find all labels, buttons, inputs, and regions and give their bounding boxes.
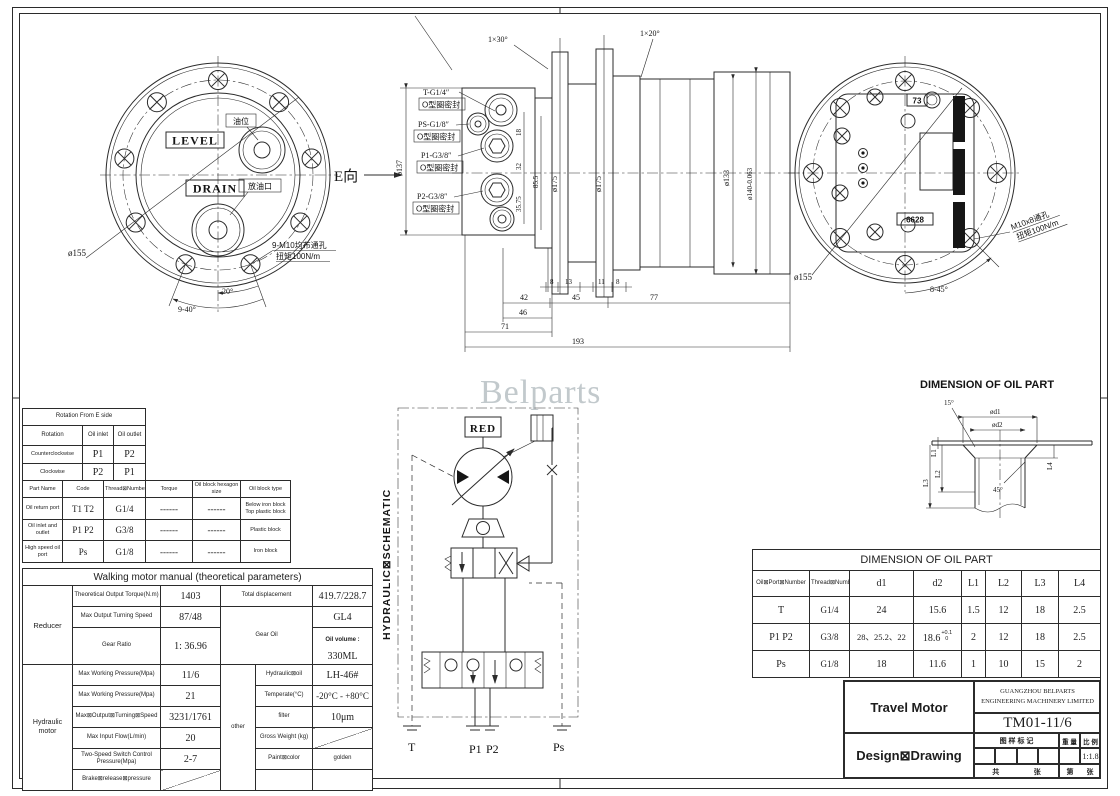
dim-dia-137: ø137 [395,160,404,176]
drawing-number-cell: TM01-11/6 [974,713,1101,733]
rotation-table-title: Rotation From E side [23,409,146,426]
part-name-cell: Travel Motor [844,681,974,733]
row-label: Max Working Pressure(Mpa) [73,665,161,686]
rotation-row-cw: Clockwise [23,464,83,481]
part-row-code: P1 P2 [63,520,104,541]
cell: T [753,597,810,624]
motor-table-title: Walking motor manual (theoretical parame… [23,569,373,586]
port-label-ps: PS-G1/8″ [418,120,449,129]
row-value: 20 [161,728,221,749]
part-row-type: Below iron blockTop plastic block [241,498,291,520]
scale-label-cell: 比 例 [1080,733,1101,748]
page-label: 第 [1067,767,1074,777]
cell: 15 [1022,651,1059,678]
hydraulic-motor-group-label: Hydraulic motor [23,665,73,791]
dim-18: 18 [515,129,523,137]
walking-motor-table: Walking motor manual (theoretical parame… [22,568,373,791]
cell: 2.5 [1059,624,1101,651]
schematic-port-p1: P1 [469,742,482,756]
ccw-outlet: P2 [114,446,146,464]
dim-32: 32 [515,163,523,171]
empty-diagonal-cell [313,728,373,749]
part-row-hex: ------ [193,541,241,563]
table-row: Oil return port T1 T2 G1/4 ------ ------… [23,498,291,520]
row-value: 2-7 [161,749,221,770]
gear-oil-label: Gear Oil [221,607,313,665]
port-label-p2: P2-G3/8″ [417,192,447,201]
oil-port-detail: DIMENSION OF OIL PART 45° ød1 ød2 15° [920,379,1092,518]
reducer-group-label: Reducer [23,586,73,665]
row-label: Gross Weight (kg) [256,728,313,749]
dim-85-5: 85.5 [532,175,540,188]
row-label: Max Output Turning Speed [73,607,161,628]
sheet-total-cell: 共 张 [974,764,1059,779]
port-seal-p2: O型圈密封 [416,204,454,214]
row-value: 10μm [313,707,373,728]
dim-8b: 8 [616,278,620,286]
part-row-name: High speed oil port [23,541,63,563]
oil-port-number-header: Oil⊠Port⊠Number [753,571,810,597]
cell: Ps [753,651,810,678]
stage-cell: Design⊠Drawing [844,733,974,779]
part-row-code: Ps [63,541,104,563]
part-row-thread: G1/8 [104,541,146,563]
row-value: 11/6 [161,665,221,686]
dim-42: 42 [520,293,528,302]
table-row: P1 P2 G3/8 28、25.2、22 18.6+0.10 2 12 18 … [753,624,1101,651]
rear-plug-label-bottom: 6628 [906,216,924,225]
part-row-torque: ------ [146,520,193,541]
d2-tolerance-cell: 18.6+0.10 [914,624,962,651]
table-row: Ps G1/8 18 11.6 1 10 15 2 [753,651,1101,678]
dim-45: 45 [572,293,580,302]
cell: P1 P2 [753,624,810,651]
row-value: 419.7/228.7 [313,586,373,607]
rear-dia-155: ø155 [794,272,813,282]
empty-diagonal-cell [161,770,221,791]
port-seal-ps: O型圈密封 [417,132,455,142]
sheet-label: 张 [1034,767,1041,777]
row-value: 87/48 [161,607,221,628]
cell: 18 [850,651,914,678]
detail-angle-15: 15° [944,399,954,407]
part-row-thread: G1/4 [104,498,146,520]
cell: 28、25.2、22 [850,624,914,651]
front-view: LEVEL DRAIN 油位 放油口 ø155 E向 9-M10均布通孔 扭矩1… [68,56,402,314]
row-value: golden [313,749,373,770]
dim-dia-140: ø140-0.063 [746,167,754,200]
port-label-t: T-G1/4″ [423,88,449,97]
detail-dim-l3: L3 [922,479,930,487]
mark-label-cell: 图 样 标 记 [974,733,1059,748]
l4-header: L4 [1059,571,1101,597]
company-cell: GUANGZHOU BELPARTS ENGINEERING MACHINERY… [974,681,1101,713]
rear-plug-label-top: 73 [913,97,922,106]
cell: 15.6 [914,597,962,624]
schematic-port-t: T [408,740,416,754]
row-value: 1403 [161,586,221,607]
part-row-torque: ------ [146,541,193,563]
cell: 2 [962,624,986,651]
d1-header: d1 [850,571,914,597]
cell: 12 [986,624,1022,651]
ccw-inlet: P1 [83,446,114,464]
front-angle-9x40: 9-40° [178,305,196,314]
port-label-p1: P1-G3/8″ [421,151,451,160]
section-view: T-G1/4″ O型圈密封 PS-G1/8″ O型圈密封 P1-G3/8″ O型… [395,16,800,352]
table-row: T G1/4 24 15.6 1.5 12 18 2.5 [753,597,1101,624]
cell: 24 [850,597,914,624]
part-row-code: T1 T2 [63,498,104,520]
dim-77: 77 [650,293,658,302]
oil-detail-title: DIMENSION OF OIL PART [920,379,1054,391]
mark-empty-cell [1038,748,1059,764]
page-sheet-label: 张 [1087,767,1094,777]
cell: 2 [1059,651,1101,678]
part-row-hex: ------ [193,520,241,541]
chamfer-1x30: 1×30° [488,35,508,44]
dim-11: 11 [598,278,605,286]
mark-empty-cell [974,748,995,764]
cw-inlet: P2 [83,464,114,481]
hexagon-header: Oil block hexagon size [193,481,241,498]
dim-13: 13 [565,278,573,286]
thread-number-header: Thread⊠Number [810,571,850,597]
front-dia-155: ø155 [68,248,87,258]
cell: 18 [1022,624,1059,651]
table-row: Oil inlet and outlet P1 P2 G3/8 ------ -… [23,520,291,541]
reducer-box-label: RED [470,423,496,435]
oil-level-note: 油位 [233,116,249,126]
drawing-sheet: Belparts [0,0,1120,796]
row-value: 1: 36.96 [161,628,221,665]
port-seal-t: O型圈密封 [422,100,460,110]
dim-46: 46 [519,308,527,317]
row-value: 21 [161,686,221,707]
row-label: Total displacement [221,586,313,607]
row-label: Brake⊠release⊠pressure [73,770,161,791]
row-label: Hydraulic⊠oil [256,665,313,686]
detail-dim-d2: ød2 [992,421,1003,429]
row-label: Max Input Flow(L/min) [73,728,161,749]
dim-35-75: 35.75 [515,196,523,212]
mark-empty-cell [995,748,1016,764]
row-label: Max Working Pressure(Mpa) [73,686,161,707]
port-seal-p1: O型圈密封 [420,163,458,173]
detail-dim-d1: ød1 [990,408,1001,416]
cell: G1/8 [810,651,850,678]
rear-bolt-note: M10x8通孔 扭矩100N/m [1009,204,1067,243]
chamfer-1x20: 1×20° [640,29,660,38]
thread-header: Thread⊠Number [104,481,146,498]
empty-cell [313,770,373,791]
dim-193: 193 [572,337,584,346]
rear-angle-8x45: 8-45° [930,285,948,294]
cell: 10 [986,651,1022,678]
dim-dia-133: ø133 [722,170,731,186]
torque-header: Torque [146,481,193,498]
part-row-torque: ------ [146,498,193,520]
cell: 18 [1022,597,1059,624]
detail-dim-l1: L1 [930,449,938,457]
d2-header: d2 [914,571,962,597]
view-direction-e: E向 [334,168,358,185]
row-label: Gear Ratio [73,628,161,665]
table-row: High speed oil port Ps G1/8 ------ -----… [23,541,291,563]
front-bolt-note-2: 扭矩100N/m [276,251,320,261]
l1-header: L1 [962,571,986,597]
hydraulic-schematic: HYDRAULIC⊠SCHEMATIC RED [381,408,578,756]
detail-dim-l2: L2 [934,470,942,478]
port-part-table: Part Name Code Thread⊠Number Torque Oil … [22,480,291,563]
l2-header: L2 [986,571,1022,597]
oil-part-table-title: DIMENSION OF OIL PART [753,550,1101,571]
oil-outlet-header: Oil outlet [114,426,146,446]
dim-dia-175-b: ø175 [594,176,603,192]
part-row-type: Plastic block [241,520,291,541]
row-value: 3231/1761 [161,707,221,728]
schematic-title: HYDRAULIC⊠SCHEMATIC [381,489,393,640]
other-group-label: other [221,665,256,791]
block-type-header: Oil block type [241,481,291,498]
dim-71: 71 [501,322,509,331]
part-row-thread: G3/8 [104,520,146,541]
cell: G3/8 [810,624,850,651]
company-line-1: GUANGZHOU BELPARTS [1000,687,1075,697]
row-value: LH-46# [313,665,373,686]
code-header: Code [63,481,104,498]
row-label: Temperate(°C) [256,686,313,707]
page-cell: 第 张 [1059,764,1101,779]
level-label: LEVEL [172,134,218,148]
drain-label: DRAIN [193,182,237,196]
cell: 1 [962,651,986,678]
cell: G1/4 [810,597,850,624]
weight-value-cell [1059,748,1080,764]
dim-8a: 8 [550,278,554,286]
dim-dia-175-a: ø175 [550,176,559,192]
cell: 1.5 [962,597,986,624]
part-row-hex: ------ [193,498,241,520]
row-value: -20°C - +80°C [313,686,373,707]
rotation-table: Rotation From E side Rotation Oil inlet … [22,408,146,481]
schematic-port-ps: Ps [553,740,565,754]
l3-header: L3 [1022,571,1059,597]
oil-part-dimension-table: DIMENSION OF OIL PART Oil⊠Port⊠Number Th… [752,549,1101,678]
row-value: GL4 [313,607,373,628]
cw-outlet: P1 [114,464,146,481]
empty-cell [256,770,313,791]
part-row-type: Iron block [241,541,291,563]
company-line-2: ENGINEERING MACHINERY LIMITED [981,697,1094,707]
part-name-header: Part Name [23,481,63,498]
oil-inlet-header: Oil inlet [83,426,114,446]
title-block: Travel Motor Design⊠Drawing GUANGZHOU BE… [843,680,1100,778]
rear-view: 73 6628 ø155 M10x8通孔 扭矩100N/m 8-45° [788,56,1067,294]
weight-label-cell: 重 量 [1059,733,1080,748]
front-angle-20: 20° [222,287,233,296]
row-label: Theoretical Output Torque(N.m) [73,586,161,607]
mark-empty-cell [1017,748,1038,764]
cell: 2.5 [1059,597,1101,624]
rotation-row-ccw: Counterclockwise [23,446,83,464]
oil-volume-cell: Oil volume : 330ML [313,628,373,665]
row-label: Max⊠Output⊠Turning⊠Speed [73,707,161,728]
row-label: filter [256,707,313,728]
detail-angle-45: 45° [993,486,1003,494]
row-label: Two-Speed Switch Control Pressure(Mpa) [73,749,161,770]
row-label: Paint⊠color [256,749,313,770]
front-bolt-note-1: 9-M10均布通孔 [272,240,327,250]
drain-port-note: 放油口 [248,181,272,191]
total-label: 共 [992,767,999,777]
part-row-name: Oil return port [23,498,63,520]
scale-value-cell: 1:1.8 [1080,748,1101,764]
part-row-name: Oil inlet and outlet [23,520,63,541]
cell: 12 [986,597,1022,624]
detail-dim-l4: L4 [1046,462,1054,470]
cell: 11.6 [914,651,962,678]
schematic-port-p2: P2 [486,742,499,756]
rotation-header: Rotation [23,426,83,446]
